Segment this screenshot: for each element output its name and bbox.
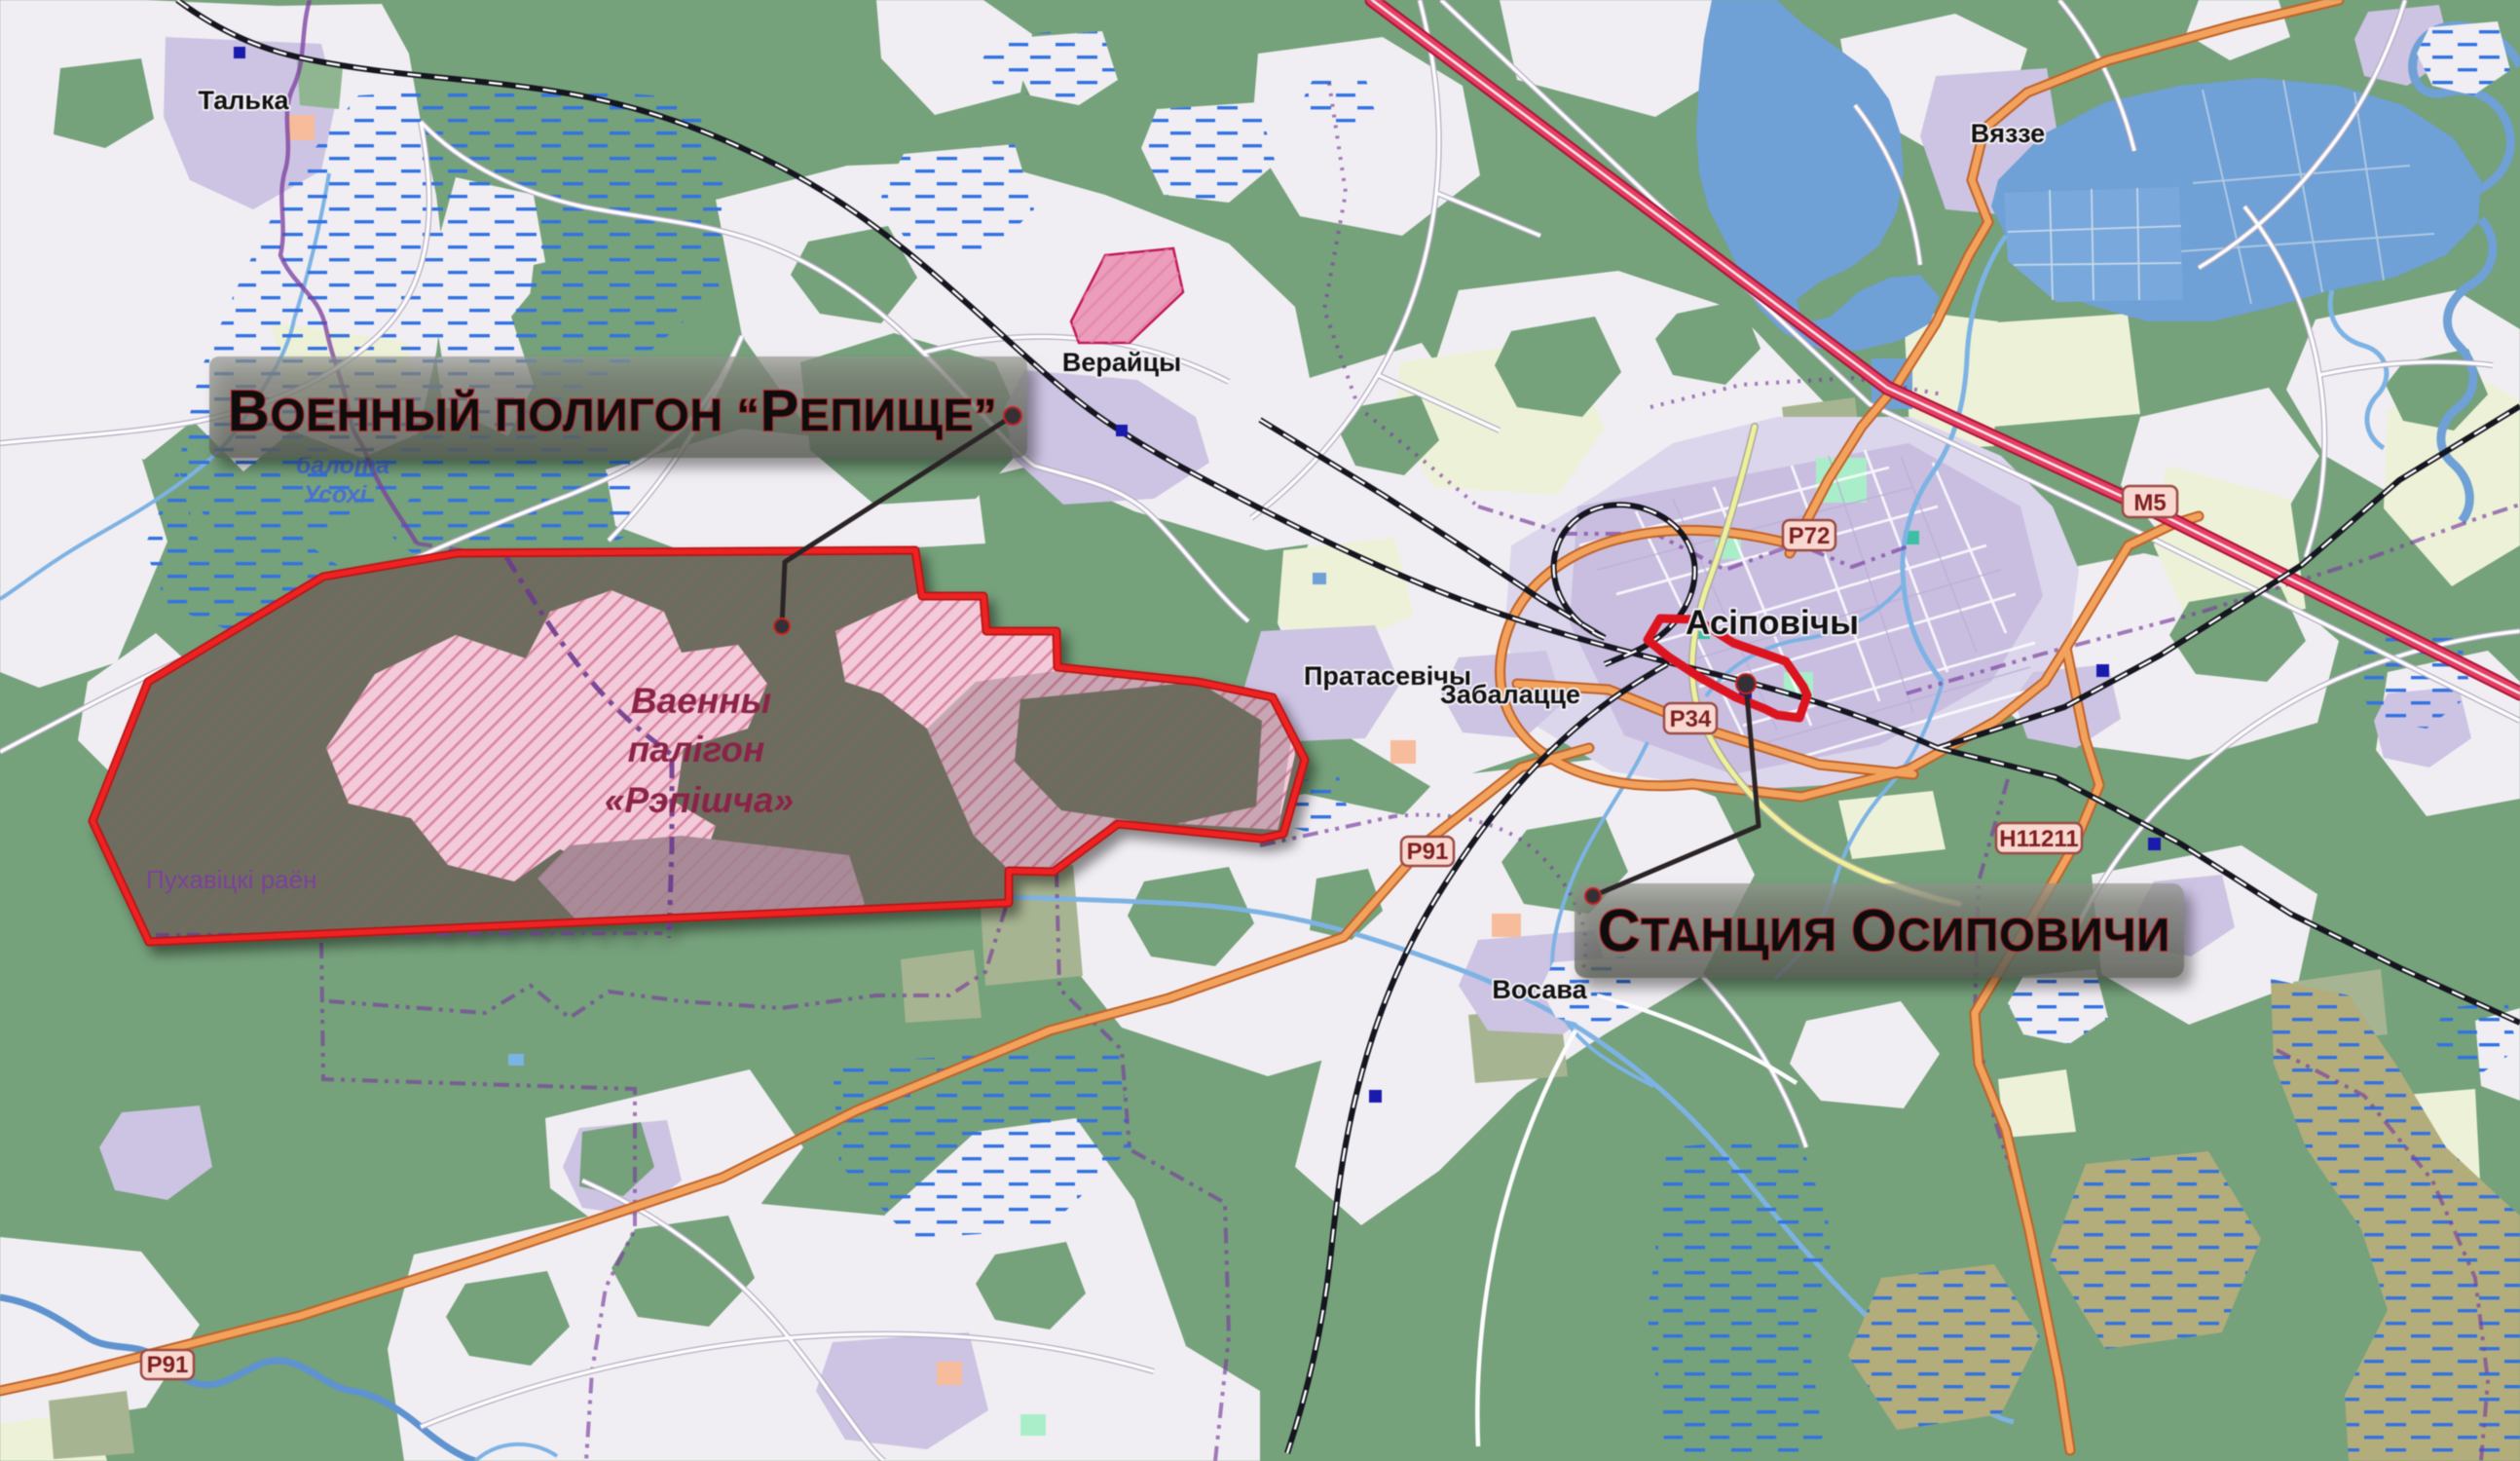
svg-text:Вяззе: Вяззе [1971,119,2045,148]
svg-text:Талька: Талька [198,86,289,115]
svg-text:М5: М5 [2133,490,2166,516]
svg-text:Восава: Восава [1492,975,1587,1004]
svg-text:Верайцы: Верайцы [1062,348,1181,377]
svg-text:Н11211: Н11211 [1999,826,2078,852]
svg-text:Р34: Р34 [1670,706,1712,732]
svg-text:Усохі: Усохі [303,481,367,508]
svg-text:Забалацце: Забалацце [1440,680,1580,709]
svg-text:Асіповічы: Асіповічы [1686,604,1859,642]
svg-text:Р91: Р91 [147,1352,189,1378]
svg-text:Пухавіцкі раён: Пухавіцкі раён [146,865,316,894]
svg-text:СТАНЦИЯ ОСИПОВИЧИ: СТАНЦИЯ ОСИПОВИЧИ [1598,898,2170,963]
svg-text:палігон: палігон [628,730,765,769]
svg-text:Р91: Р91 [1407,839,1449,865]
svg-text:Ваенны: Ваенны [631,681,771,721]
svg-text:Р72: Р72 [1789,523,1831,549]
svg-text:«Рэпішча»: «Рэпішча» [605,780,794,820]
